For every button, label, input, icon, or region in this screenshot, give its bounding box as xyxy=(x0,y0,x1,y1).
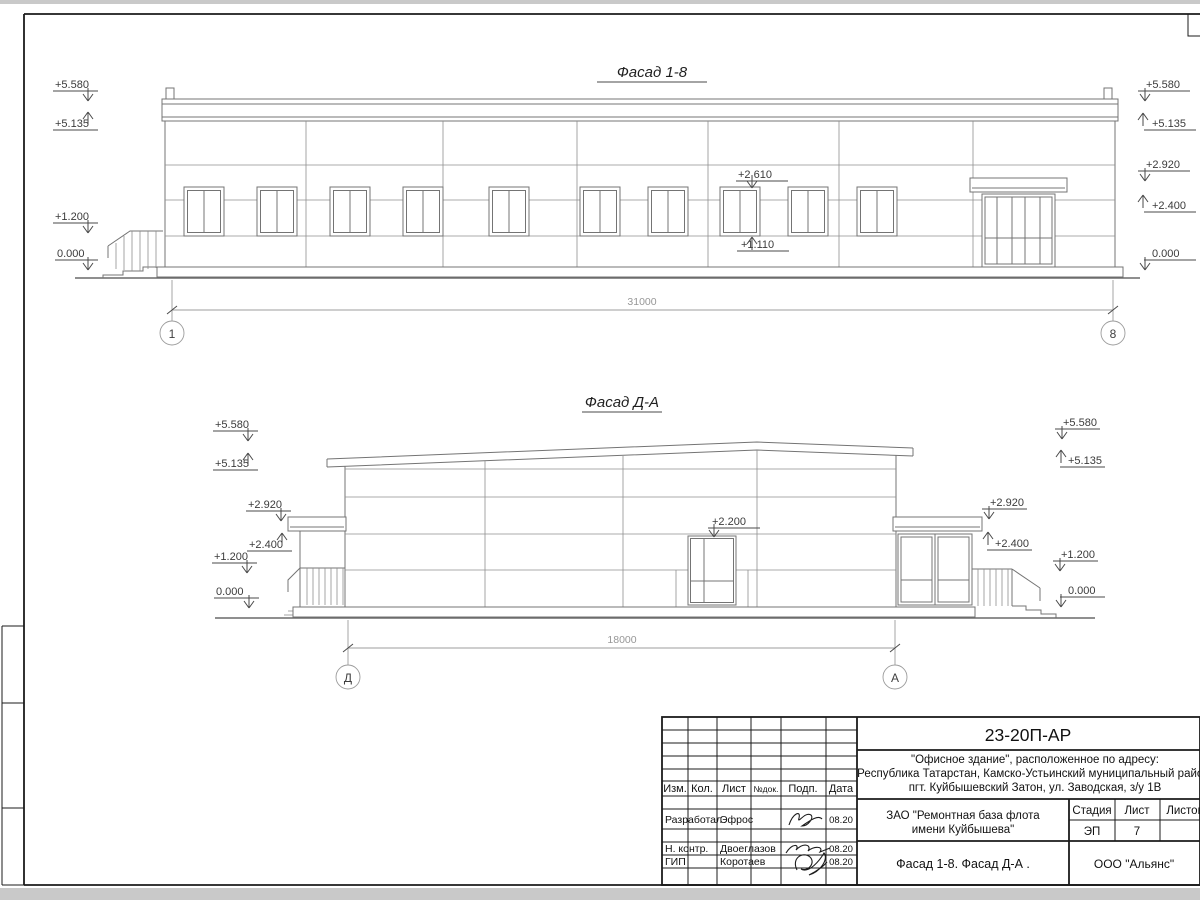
window xyxy=(403,187,443,236)
col-izm: Изм. xyxy=(663,783,687,795)
svg-text:+2.400: +2.400 xyxy=(995,538,1029,550)
svg-text:+1.200: +1.200 xyxy=(214,551,248,563)
client-name: ЗАО "Ремонтная база флота имени Куйбышев… xyxy=(886,810,1040,836)
svg-text:+5.580: +5.580 xyxy=(215,419,249,431)
sheet-label: Лист xyxy=(1125,805,1151,817)
svg-text:1: 1 xyxy=(169,327,176,341)
entrance-canopy xyxy=(970,178,1067,192)
svg-text:ГИП: ГИП xyxy=(665,856,686,868)
stage-value: ЭП xyxy=(1084,826,1101,838)
facade-1-8-drawing: Фасад 1-8 xyxy=(53,64,1196,345)
svg-text:"Офисное здание", расположенно: "Офисное здание", расположенное по адрес… xyxy=(911,754,1159,766)
svg-text:+5.135: +5.135 xyxy=(1152,118,1186,130)
col-kol: Кол. xyxy=(691,783,713,795)
svg-text:+1.200: +1.200 xyxy=(1061,549,1095,561)
drawing-sheet: Фасад 1-8 xyxy=(0,0,1200,900)
facade-d-a-drawing: Фасад Д-А +2.200 xyxy=(212,394,1105,689)
svg-text:Коротаев: Коротаев xyxy=(720,856,766,868)
facade-d-a-door xyxy=(667,536,753,613)
svg-text:ЗАО "Ремонтная база флота: ЗАО "Ремонтная база флота xyxy=(886,810,1040,822)
title-block-header-row: Изм. Кол. Лист №док. Подп. Дата xyxy=(663,783,854,795)
col-data: Дата xyxy=(829,783,854,795)
company-name: ООО "Альянс" xyxy=(1094,857,1174,871)
window xyxy=(857,187,897,236)
signature xyxy=(786,845,830,853)
svg-text:+2.920: +2.920 xyxy=(1146,159,1180,171)
col-podp: Подп. xyxy=(788,783,817,795)
title-block: Изм. Кол. Лист №док. Подп. Дата Разработ… xyxy=(662,717,1200,885)
svg-text:Д: Д xyxy=(344,671,352,685)
svg-text:8: 8 xyxy=(1110,327,1117,341)
svg-text:+2.400: +2.400 xyxy=(249,539,283,551)
facade-1-8-stair xyxy=(103,231,165,278)
svg-text:+1.200: +1.200 xyxy=(55,211,89,223)
dimension-31000: 31000 xyxy=(627,296,656,308)
svg-text:+5.580: +5.580 xyxy=(1146,79,1180,91)
window xyxy=(788,187,828,236)
facade-1-8-entrance xyxy=(970,178,1067,274)
facade-d-a-dimension: 18000 Д А xyxy=(336,620,907,689)
svg-text:+5.580: +5.580 xyxy=(55,79,89,91)
page-edge-top xyxy=(0,0,1200,4)
signature xyxy=(789,814,822,826)
svg-text:Двоеглазов: Двоеглазов xyxy=(720,843,776,855)
svg-text:пгт. Куйбышевский Затон, ул. З: пгт. Куйбышевский Затон, ул. Заводская, … xyxy=(909,782,1162,794)
roof-vent-right xyxy=(1104,88,1112,99)
svg-text:08.20: 08.20 xyxy=(829,857,853,868)
svg-text:Республика Татарстан, Камско-У: Республика Татарстан, Камско-Устьинский … xyxy=(857,768,1200,780)
facade-1-8-wall xyxy=(165,121,1115,267)
sign-row-gip: ГИП Коротаев 08.20 xyxy=(665,853,853,875)
svg-text:0.000: 0.000 xyxy=(1068,585,1096,597)
sheet-canvas: Фасад 1-8 xyxy=(0,0,1200,900)
window xyxy=(257,187,297,236)
sheets-label: Листов xyxy=(1166,805,1200,817)
facade-d-a-left-porch xyxy=(284,517,346,615)
facade-1-8-dimension: 31000 1 8 xyxy=(160,280,1125,345)
sign-row-developer: Разработал Эфрос 08.20 xyxy=(665,814,853,826)
svg-text:+2.200: +2.200 xyxy=(712,516,746,528)
svg-text:+2.920: +2.920 xyxy=(990,497,1024,509)
roof-vent-left xyxy=(166,88,174,99)
facade-d-a-marks-right: +5.580 +5.135 +2.920 +2.400 +1.200 0.000 xyxy=(982,417,1105,607)
svg-text:+5.135: +5.135 xyxy=(1068,455,1102,467)
window xyxy=(184,187,224,236)
svg-text:+1.110: +1.110 xyxy=(741,239,774,251)
col-list: Лист xyxy=(722,783,746,795)
stage-sheet-cells: Стадия Лист Листов ЭП 7 xyxy=(1072,805,1200,838)
object-address: "Офисное здание", расположенное по адрес… xyxy=(857,754,1200,794)
col-ndok: №док. xyxy=(754,784,779,794)
window xyxy=(648,187,688,236)
document-number: 23-20П-АР xyxy=(985,725,1072,745)
entrance-door xyxy=(982,194,1055,267)
svg-text:имени Куйбышева": имени Куйбышева" xyxy=(912,824,1015,836)
facade-d-a-title: Фасад Д-А xyxy=(585,394,659,411)
facade-1-8-title: Фасад 1-8 xyxy=(617,64,688,81)
svg-text:+5.135: +5.135 xyxy=(55,118,89,130)
svg-text:0.000: 0.000 xyxy=(1152,248,1180,260)
window xyxy=(720,187,760,236)
drawing-title-cell: Фасад 1-8. Фасад Д-А . xyxy=(896,857,1030,871)
svg-text:+5.135: +5.135 xyxy=(215,458,249,470)
svg-text:+5.580: +5.580 xyxy=(1063,417,1097,429)
window xyxy=(580,187,620,236)
svg-text:0.000: 0.000 xyxy=(216,586,244,598)
stage-label: Стадия xyxy=(1072,805,1111,817)
svg-text:Н. контр.: Н. контр. xyxy=(665,843,708,855)
sheet-value: 7 xyxy=(1134,826,1140,838)
svg-text:0.000: 0.000 xyxy=(57,248,85,260)
svg-text:Эфрос: Эфрос xyxy=(720,814,753,826)
facade-d-a-right-porch xyxy=(893,517,1056,618)
svg-text:+2.400: +2.400 xyxy=(1152,200,1186,212)
facade-1-8-marks-right: +5.580 +5.135 +2.920 +2.400 0.000 xyxy=(1138,79,1196,270)
facade-1-8-marks-left: +5.580 +5.135 +1.200 0.000 xyxy=(53,79,98,270)
svg-text:08.20: 08.20 xyxy=(829,844,853,855)
window xyxy=(330,187,370,236)
svg-text:+2.610: +2.610 xyxy=(738,169,772,181)
svg-text:+2.920: +2.920 xyxy=(248,499,282,511)
signature xyxy=(795,853,827,875)
facade-d-a-marks-left: +5.580 +5.135 +2.920 +2.400 +1.200 0.000 xyxy=(212,419,292,608)
dimension-18000: 18000 xyxy=(607,634,636,646)
svg-text:А: А xyxy=(891,671,899,685)
svg-text:Разработал: Разработал xyxy=(665,814,722,826)
svg-text:08.20: 08.20 xyxy=(829,815,853,826)
window xyxy=(489,187,529,236)
page-edge-bottom xyxy=(0,888,1200,900)
